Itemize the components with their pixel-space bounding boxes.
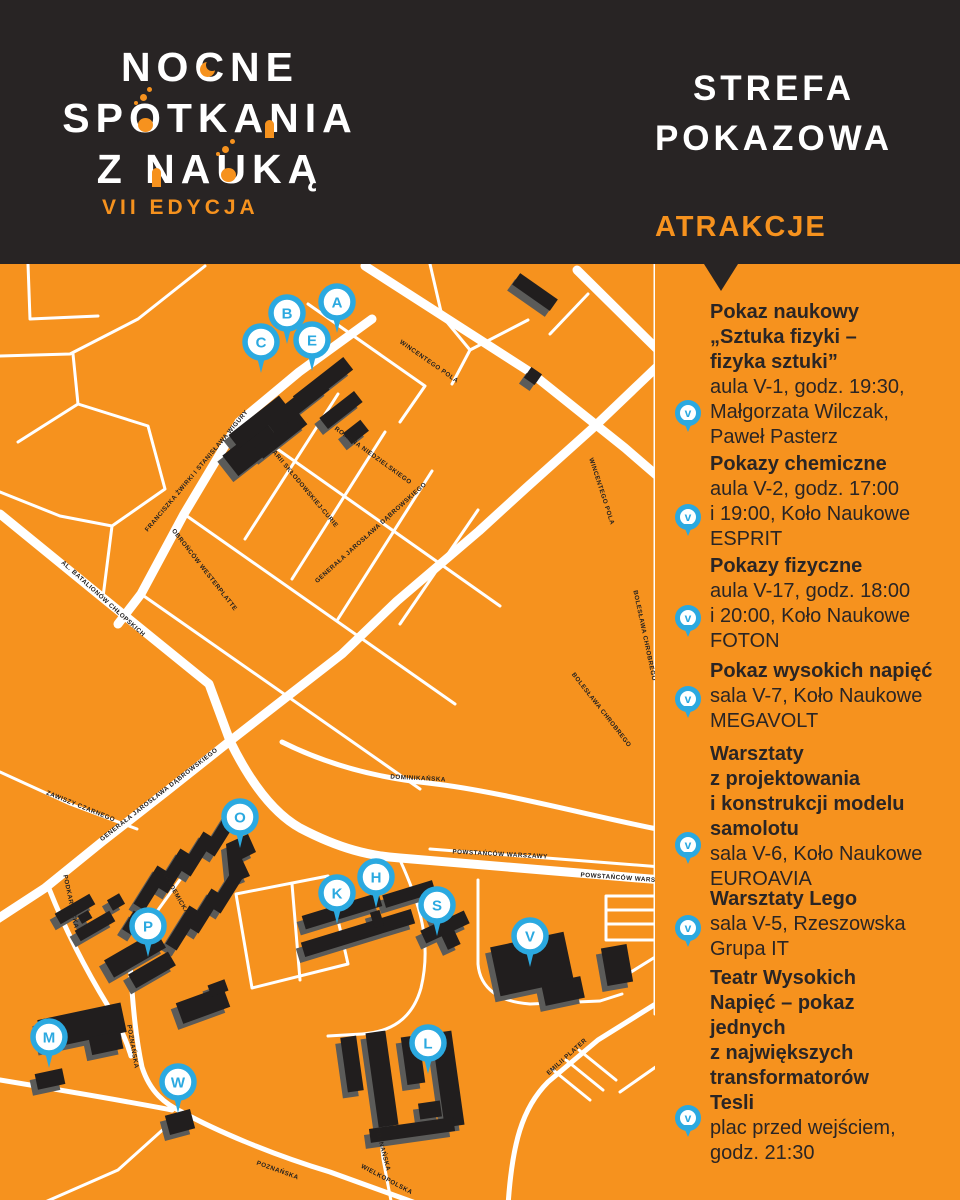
attraction-item: Pokazy chemiczneaula V-2, godz. 17:00 i …: [710, 452, 955, 552]
attraction-item: Warsztaty z projektowania i konstrukcji …: [710, 742, 955, 892]
door-icon: [265, 120, 274, 138]
attraction-details: aula V-2, godz. 17:00 i 19:00, Koło Nauk…: [710, 477, 955, 552]
attraction-title: Pokazy chemiczne: [710, 452, 955, 477]
flask-bubble-icon: [216, 152, 220, 156]
marker-letter: E: [307, 333, 317, 350]
marker-letter: S: [432, 898, 442, 915]
attraction-details: sala V-5, Rzeszowska Grupa IT: [710, 912, 955, 962]
flask-bubble-icon: [230, 139, 235, 144]
attraction-title: Pokaz naukowy „Sztuka fizyki – fizyka sz…: [710, 300, 955, 375]
edition-label: VII EDYCJA: [102, 196, 259, 220]
marker-letter: A: [332, 295, 343, 312]
sidebar-pin-icon: v: [675, 915, 701, 941]
attraction-details: sala V-7, Koło Naukowe MEGAVOLT: [710, 684, 955, 734]
sidebar-pin-icon: v: [675, 605, 701, 631]
attraction-details: sala V-6, Koło Naukowe EUROAVIA: [710, 842, 955, 892]
flask-bubble-icon: [222, 146, 229, 153]
attractions-heading: ATRAKCJE: [655, 211, 827, 244]
attraction-title: Warsztaty z projektowania i konstrukcji …: [710, 742, 955, 842]
attraction-item: Pokaz naukowy „Sztuka fizyki – fizyka sz…: [710, 300, 955, 450]
logo-line-2: SPOTKANIA: [55, 93, 365, 144]
sidebar-pin-icon: v: [675, 400, 701, 426]
marker-letter: V: [525, 929, 535, 946]
marker-letter: P: [143, 919, 153, 936]
attraction-item: Warsztaty Legosala V-5, Rzeszowska Grupa…: [710, 887, 955, 962]
marker-letter: M: [43, 1030, 56, 1047]
attractions-sidebar: Pokaz naukowy „Sztuka fizyki – fizyka sz…: [655, 264, 960, 1200]
sidebar-pin-icon: v: [675, 686, 701, 712]
marker-letter: B: [282, 306, 293, 323]
attraction-item: Teatr Wysokich Napięć – pokaz jednych z …: [710, 966, 955, 1166]
sidebar-pin-icon: v: [675, 832, 701, 858]
building: [418, 1101, 442, 1120]
marker-letter: C: [256, 335, 267, 352]
attraction-details: aula V-17, godz. 18:00 i 20:00, Koło Nau…: [710, 579, 955, 654]
flask-liquid-icon: [221, 168, 236, 182]
marker-letter: W: [171, 1075, 186, 1092]
attraction-item: Pokaz wysokich napięćsala V-7, Koło Nauk…: [710, 659, 955, 734]
event-poster: { "header": { "logo_line1": "NOCNE", "lo…: [0, 0, 960, 1200]
marker-letter: H: [371, 870, 382, 887]
zone-title: STREFA POKAZOWA: [648, 64, 900, 164]
sidebar-pin-icon: v: [675, 504, 701, 530]
marker-letter: O: [234, 810, 246, 827]
flask-bubble-icon: [140, 94, 147, 101]
attraction-title: Pokazy fizyczne: [710, 554, 955, 579]
attraction-item: Pokazy fizyczneaula V-17, godz. 18:00 i …: [710, 554, 955, 654]
flask-liquid-icon: [138, 118, 153, 132]
sidebar-pin-icon: v: [675, 1105, 701, 1131]
campus-street-map: WINCENTEGO POLAWINCENTEGO POLAROMANA NIE…: [0, 264, 655, 1200]
attraction-title: Teatr Wysokich Napięć – pokaz jednych z …: [710, 966, 955, 1116]
flask-bubble-icon: [147, 87, 152, 92]
attraction-title: Pokaz wysokich napięć: [710, 659, 955, 684]
door-icon: [152, 168, 161, 187]
logo-line-3: Z NAUKĄ: [55, 144, 365, 195]
marker-letter: L: [423, 1036, 432, 1053]
attraction-details: plac przed wejściem, godz. 21:30: [710, 1116, 955, 1166]
header-bar: NOCNE SPOTKANIA Z NAUKĄ VII EDYCJA STREF…: [0, 0, 960, 264]
attraction-details: aula V-1, godz. 19:30, Małgorzata Wilcza…: [710, 375, 955, 450]
flask-bubble-icon: [134, 101, 138, 105]
attraction-title: Warsztaty Lego: [710, 887, 955, 912]
moon-cut-icon: [206, 59, 218, 71]
marker-letter: K: [332, 886, 343, 903]
